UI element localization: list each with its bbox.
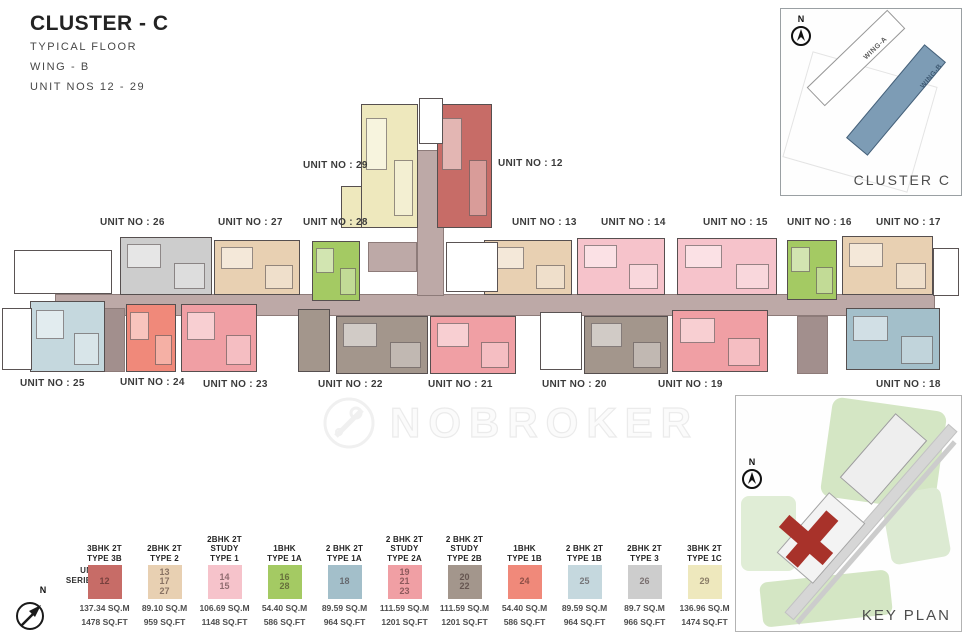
legend-unit-numbers: 18 — [339, 577, 349, 586]
legend-entry-5: 2 BHK 2T TYPE 1A 18 89.59 SQ.M 964 SQ.FT — [316, 530, 373, 629]
legend-type-title: 3BHK 2T TYPE 1C — [676, 530, 733, 563]
unit-15-block — [677, 238, 777, 295]
unit-26-label: UNIT NO : 26 — [100, 217, 165, 228]
room-outline — [591, 323, 622, 347]
room-outline — [481, 342, 510, 368]
key-plan-inset: N KEY PLAN — [735, 395, 962, 632]
legend-area-sqm: 136.96 SQ.M — [676, 602, 733, 616]
room-outline — [633, 342, 661, 368]
legend-area-sqft: 586 SQ.FT — [496, 616, 553, 630]
legend-entry-4: 1BHK TYPE 1A 16 28 54.40 SQ.M 586 SQ.FT — [256, 530, 313, 629]
room-outline — [316, 248, 333, 272]
room-outline — [853, 316, 888, 341]
legend-type-title: 2BHK 2T TYPE 3 — [616, 530, 673, 563]
legend-entry-9: 2 BHK 2T TYPE 1B 25 89.59 SQ.M 964 SQ.FT — [556, 530, 613, 629]
legend-area-sqft: 1148 SQ.FT — [196, 616, 253, 630]
room-outline — [390, 342, 421, 368]
unit-23-block — [181, 304, 257, 372]
legend-unit-numbers: 24 — [519, 577, 529, 586]
legend-area-sqm: 89.59 SQ.M — [556, 602, 613, 616]
room-outline — [130, 312, 148, 340]
legend-area-sqm: 111.59 SQ.M — [436, 602, 493, 616]
corridor-lobby — [368, 242, 417, 272]
unit-17-block — [842, 236, 933, 295]
legend-area-sqm: 137.34 SQ.M — [76, 602, 133, 616]
unit-12-label: UNIT NO : 12 — [498, 158, 563, 169]
legend-type-title: 2 BHK 2T STUDY TYPE 2A — [376, 530, 433, 563]
unit-12-block — [437, 104, 492, 228]
legend-unit-numbers: 19 21 23 — [399, 568, 409, 596]
legend-unit-numbers: 25 — [579, 577, 589, 586]
legend-type-title: 2 BHK 2T STUDY TYPE 2B — [436, 530, 493, 563]
legend-type-title: 1BHK TYPE 1B — [496, 530, 553, 563]
legend-area-sqm: 54.40 SQ.M — [256, 602, 313, 616]
room-outline — [155, 335, 171, 365]
unit-16-block — [787, 240, 837, 300]
legend-area-sqft: 1474 SQ.FT — [676, 616, 733, 630]
legend-area-sqft: 1201 SQ.FT — [436, 616, 493, 630]
unit-24-label: UNIT NO : 24 — [120, 377, 185, 388]
legend-unit-numbers: 12 — [99, 577, 109, 586]
rooms-left-top — [14, 250, 112, 294]
unit-26-block — [120, 237, 212, 295]
legend-entry-10: 2BHK 2T TYPE 3 26 89.7 SQ.M 966 SQ.FT — [616, 530, 673, 629]
legend-area-sqft: 964 SQ.FT — [556, 616, 613, 630]
legend-area-sqft: 586 SQ.FT — [256, 616, 313, 630]
unit-type-legend: 3BHK 2T TYPE 3B 12 137.34 SQ.M 1478 SQ.F… — [76, 530, 733, 629]
north-compass-icon: N — [10, 586, 54, 635]
unit-19-block — [672, 310, 768, 372]
legend-swatch: 20 22 — [448, 565, 482, 599]
room-outline — [536, 265, 565, 289]
legend-type-title: 2BHK 2T TYPE 2 — [136, 530, 193, 563]
legend-entry-11: 3BHK 2T TYPE 1C 29 136.96 SQ.M 1474 SQ.F… — [676, 530, 733, 629]
rooms-left-bottom — [2, 308, 32, 370]
legend-entry-7: 2 BHK 2T STUDY TYPE 2B 20 22 111.59 SQ.M… — [436, 530, 493, 629]
unit-20-label: UNIT NO : 20 — [542, 379, 607, 390]
unit-22-block — [336, 316, 428, 374]
unit-17-label: UNIT NO : 17 — [876, 217, 941, 228]
legend-entry-1: 3BHK 2T TYPE 3B 12 137.34 SQ.M 1478 SQ.F… — [76, 530, 133, 629]
legend-unit-numbers: 14 15 — [219, 573, 229, 592]
legend-area-sqft: 964 SQ.FT — [316, 616, 373, 630]
room-outline — [265, 265, 294, 289]
north-compass-icon: N — [789, 15, 813, 48]
room-outline — [394, 160, 413, 216]
room-outline — [187, 312, 215, 340]
legend-unit-numbers: 16 28 — [279, 573, 289, 592]
legend-swatch: 12 — [88, 565, 122, 599]
room-outline — [74, 333, 99, 365]
legend-swatch: 19 21 23 — [388, 565, 422, 599]
stair-shaft-left — [103, 308, 125, 372]
unit-25-label: UNIT NO : 25 — [20, 378, 85, 389]
room-outline — [736, 264, 769, 289]
room-outline — [343, 323, 377, 347]
unit-23-label: UNIT NO : 23 — [203, 379, 268, 390]
unit-28-block — [312, 241, 360, 301]
legend-unit-numbers: 20 22 — [459, 573, 469, 592]
legend-area-sqm: 89.59 SQ.M — [316, 602, 373, 616]
rooms-right-edge — [933, 248, 959, 296]
legend-unit-numbers: 13 17 27 — [159, 568, 169, 596]
legend-swatch: 14 15 — [208, 565, 242, 599]
legend-area-sqm: 89.7 SQ.M — [616, 602, 673, 616]
unit-13-label: UNIT NO : 13 — [512, 217, 577, 228]
rooms-lift-lobby — [446, 242, 498, 292]
room-outline — [685, 245, 722, 268]
unit-18-label: UNIT NO : 18 — [876, 379, 941, 390]
room-outline — [584, 245, 617, 268]
room-outline — [174, 263, 205, 289]
legend-area-sqft: 966 SQ.FT — [616, 616, 673, 630]
legend-unit-numbers: 29 — [699, 577, 709, 586]
unit-25-block — [30, 301, 105, 372]
unit-28-label: UNIT NO : 28 — [303, 217, 368, 228]
unit-21-label: UNIT NO : 21 — [428, 379, 493, 390]
legend-swatch: 29 — [688, 565, 722, 599]
legend-type-title: 3BHK 2T TYPE 3B — [76, 530, 133, 563]
room-outline — [340, 268, 356, 295]
north-compass-icon: N — [740, 458, 764, 491]
legend-type-title: 2BHK 2T STUDY TYPE 1 — [196, 530, 253, 563]
room-outline — [127, 244, 161, 268]
unit-20-block — [584, 316, 668, 374]
room-outline — [680, 318, 716, 343]
legend-entry-3: 2BHK 2T STUDY TYPE 1 14 15 106.69 SQ.M 1… — [196, 530, 253, 629]
room-outline — [226, 335, 251, 365]
unit-19-label: UNIT NO : 19 — [658, 379, 723, 390]
legend-type-title: 2 BHK 2T TYPE 1B — [556, 530, 613, 563]
cluster-inset-caption: CLUSTER C — [854, 172, 951, 188]
legend-area-sqft: 959 SQ.FT — [136, 616, 193, 630]
legend-swatch: 13 17 27 — [148, 565, 182, 599]
room-outline — [366, 118, 387, 169]
stair-core-top — [419, 98, 443, 144]
unit-29-block — [361, 104, 418, 228]
legend-swatch: 18 — [328, 565, 362, 599]
cluster-location-inset: N WING-A WING-B CLUSTER C — [780, 8, 962, 196]
unit-27-label: UNIT NO : 27 — [218, 217, 283, 228]
legend-area-sqft: 1478 SQ.FT — [76, 616, 133, 630]
legend-entry-2: 2BHK 2T TYPE 2 13 17 27 89.10 SQ.M 959 S… — [136, 530, 193, 629]
legend-area-sqm: 106.69 SQ.M — [196, 602, 253, 616]
unit-27-block — [214, 240, 300, 295]
room-outline — [629, 264, 658, 289]
room-outline — [437, 323, 469, 347]
unit-14-label: UNIT NO : 14 — [601, 217, 666, 228]
room-outline — [849, 243, 883, 267]
legend-swatch: 25 — [568, 565, 602, 599]
unit-15-label: UNIT NO : 15 — [703, 217, 768, 228]
legend-area-sqm: 54.40 SQ.M — [496, 602, 553, 616]
legend-area-sqft: 1201 SQ.FT — [376, 616, 433, 630]
unit-22-annex-block — [298, 309, 330, 372]
stair-shaft-right — [797, 316, 828, 374]
legend-type-title: 1BHK TYPE 1A — [256, 530, 313, 563]
legend-unit-numbers: 26 — [639, 577, 649, 586]
room-outline — [221, 247, 253, 269]
legend-swatch: 24 — [508, 565, 542, 599]
unit-29-label: UNIT NO : 29 — [303, 160, 368, 171]
legend-type-title: 2 BHK 2T TYPE 1A — [316, 530, 373, 563]
legend-entry-8: 1BHK TYPE 1B 24 54.40 SQ.M 586 SQ.FT — [496, 530, 553, 629]
unit-16-label: UNIT NO : 16 — [787, 217, 852, 228]
unit-21-block — [430, 316, 516, 374]
room-outline — [901, 336, 932, 364]
room-outline — [791, 247, 809, 271]
unit-22-label: UNIT NO : 22 — [318, 379, 383, 390]
lift-core-center — [540, 312, 582, 370]
key-plan-caption: KEY PLAN — [862, 607, 951, 624]
room-outline — [816, 267, 832, 294]
legend-swatch: 16 28 — [268, 565, 302, 599]
room-outline — [896, 263, 926, 289]
legend-area-sqm: 111.59 SQ.M — [376, 602, 433, 616]
legend-entry-6: 2 BHK 2T STUDY TYPE 2A 19 21 23 111.59 S… — [376, 530, 433, 629]
room-outline — [36, 310, 64, 339]
unit-14-block — [577, 238, 665, 295]
legend-area-sqm: 89.10 SQ.M — [136, 602, 193, 616]
room-outline — [442, 118, 462, 169]
legend-swatch: 26 — [628, 565, 662, 599]
floor-plan-page: CLUSTER - C TYPICAL FLOOR WING - B UNIT … — [0, 0, 967, 640]
room-outline — [728, 338, 760, 366]
room-outline — [469, 160, 487, 216]
unit-18-block — [846, 308, 940, 370]
unit-24-block — [126, 304, 176, 372]
